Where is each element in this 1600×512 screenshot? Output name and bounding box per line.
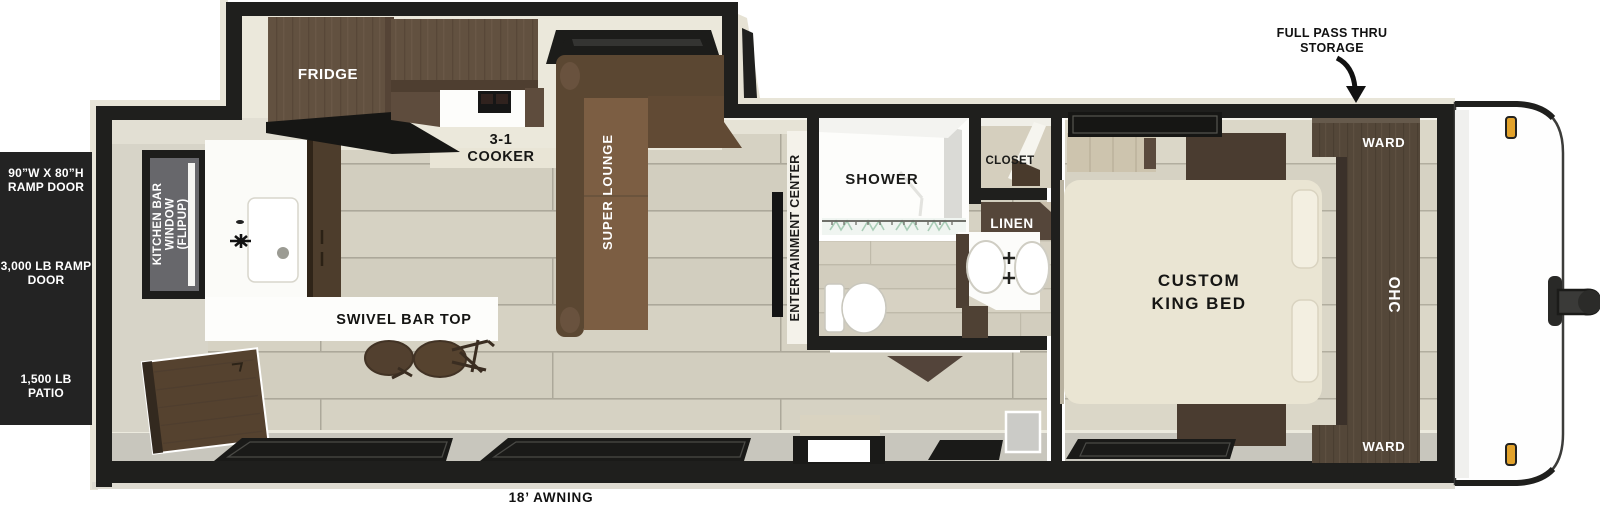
svg-text:WINDOW: WINDOW	[165, 198, 177, 250]
svg-text:WARD: WARD	[1363, 135, 1406, 150]
svg-text:CLOSET: CLOSET	[985, 155, 1034, 167]
svg-text:COOKER: COOKER	[467, 149, 534, 165]
svg-text:(FLIPUP): (FLIPUP)	[177, 199, 189, 250]
svg-text:KITCHEN BAR: KITCHEN BAR	[152, 182, 164, 265]
svg-text:RAMP DOOR: RAMP DOOR	[8, 180, 84, 194]
svg-text:ENTERTAINMENT CENTER: ENTERTAINMENT CENTER	[788, 155, 802, 322]
svg-text:WARD: WARD	[1363, 439, 1406, 454]
svg-text:FULL PASS THRU: FULL PASS THRU	[1277, 26, 1388, 40]
svg-text:3-1: 3-1	[490, 132, 513, 148]
svg-text:1,500 LB: 1,500 LB	[21, 372, 72, 386]
svg-text:LINEN: LINEN	[990, 216, 1034, 231]
svg-text:SWIVEL BAR TOP: SWIVEL BAR TOP	[336, 312, 472, 328]
svg-text:DOOR: DOOR	[28, 273, 65, 287]
svg-text:PATIO: PATIO	[28, 386, 64, 400]
svg-text:SHOWER: SHOWER	[845, 171, 919, 188]
svg-text:KING BED: KING BED	[1151, 294, 1246, 313]
svg-text:OHC: OHC	[1385, 277, 1402, 314]
svg-text:90”W X 80”H: 90”W X 80”H	[8, 166, 84, 180]
svg-text:3,000 LB RAMP: 3,000 LB RAMP	[1, 259, 92, 273]
svg-text:STORAGE: STORAGE	[1300, 41, 1364, 55]
svg-text:CUSTOM: CUSTOM	[1158, 271, 1240, 290]
svg-text:SUPER LOUNGE: SUPER LOUNGE	[600, 134, 615, 250]
svg-text:18’ AWNING: 18’ AWNING	[509, 490, 594, 505]
svg-text:FRIDGE: FRIDGE	[298, 66, 358, 83]
